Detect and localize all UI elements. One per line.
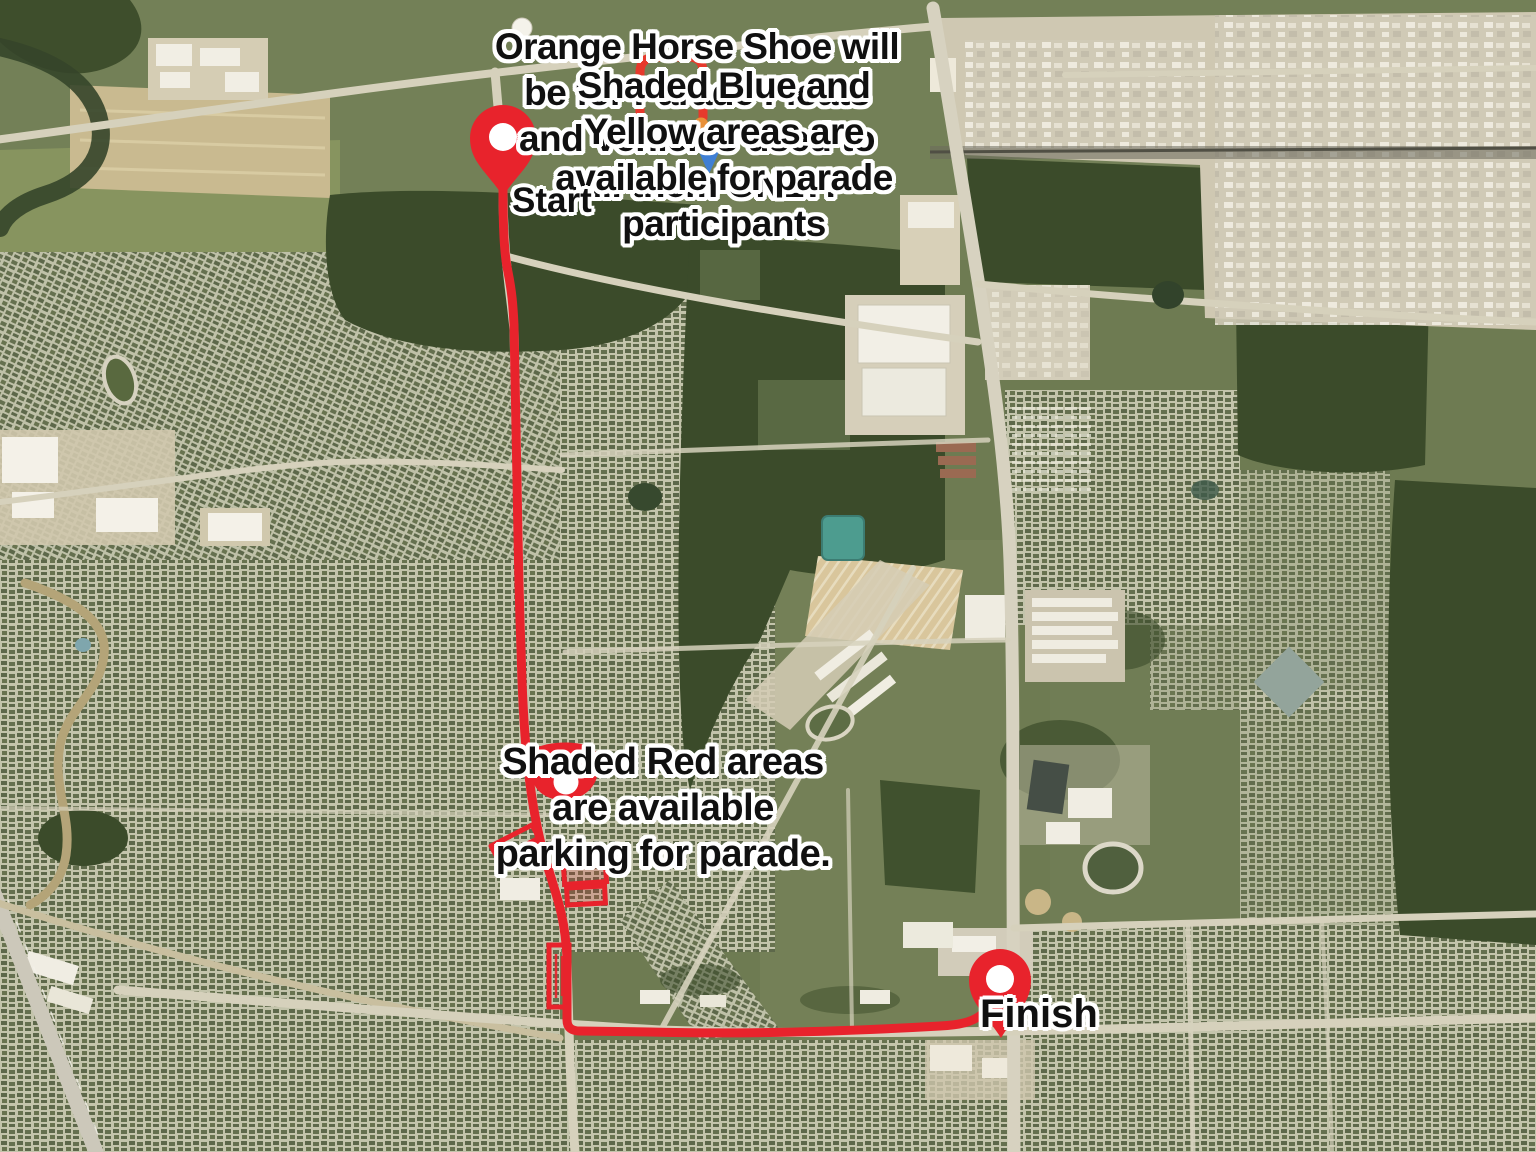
finish-pin-label: Finish (980, 992, 1098, 1037)
note-line: Shaded Blue and (555, 63, 893, 109)
note-line: participants (555, 201, 893, 247)
parade-map-image: Orange Horse Shoe will be for Parade Flo… (0, 0, 1536, 1152)
start-pin-label: Start (512, 181, 592, 221)
note-line: are available (496, 785, 831, 831)
blue-yellow-areas-note: Shaded Blue and Yellow areas are availab… (555, 63, 893, 247)
note-line: Yellow areas are (555, 109, 893, 155)
note-line: parking for parade. (496, 831, 831, 877)
red-parking-note: Shaded Red areas are available parking f… (496, 739, 831, 877)
note-line: available for parade (555, 155, 893, 201)
note-line: Shaded Red areas (496, 739, 831, 785)
